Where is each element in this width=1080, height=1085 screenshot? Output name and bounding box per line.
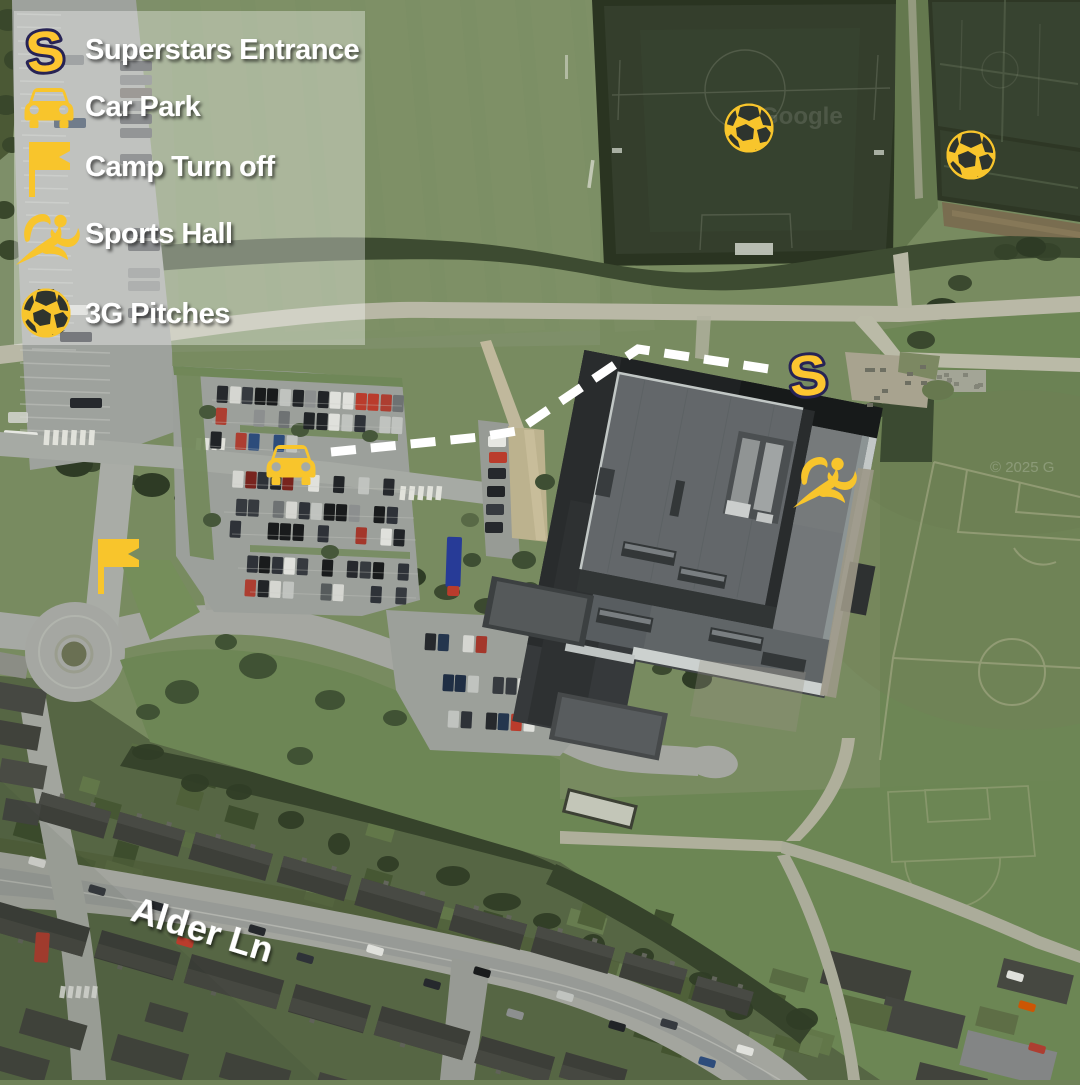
svg-text:3G Pitches: 3G Pitches <box>85 298 230 330</box>
svg-text:Camp Turn off: Camp Turn off <box>85 151 275 183</box>
svg-text:Car Park: Car Park <box>85 91 202 123</box>
svg-text:Sports Hall: Sports Hall <box>85 218 233 250</box>
svg-text:Superstars Entrance: Superstars Entrance <box>85 34 360 66</box>
